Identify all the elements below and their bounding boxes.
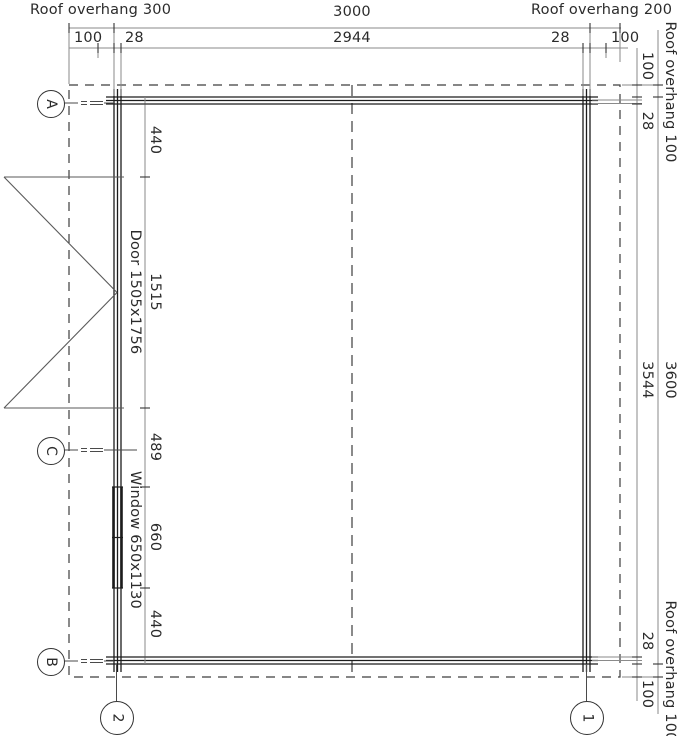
grid-bubble-2-label: 2	[109, 714, 125, 723]
grid-bubble-c: C	[37, 437, 65, 465]
dim-660-label: 660	[147, 523, 162, 551]
dim-440-top-label: 440	[147, 126, 162, 154]
grid-bubble-c-label: C	[43, 446, 59, 456]
grid-bubble-1-label: 1	[579, 714, 595, 723]
grid-bubble-2: 2	[100, 701, 134, 735]
dim-3000-label: 3000	[333, 5, 371, 20]
dim-440-bottom-label: 440	[147, 610, 162, 638]
door-swing	[4, 177, 124, 408]
grid-bubble-b-label: B	[43, 657, 59, 667]
dim-28-right-top-label: 28	[639, 112, 654, 131]
roof-overhang-top-right-label: Roof overhang 100	[662, 21, 677, 162]
grid-bubble-b: B	[37, 648, 65, 676]
dim-28-right-bottom-label: 28	[639, 632, 654, 651]
floor-plan-drawing: Roof overhang 300 3000 Roof overhang 200…	[0, 0, 680, 736]
door-annotation: Door 1505x1756	[127, 230, 142, 355]
grid-leader-c	[63, 449, 137, 452]
dim-100-top-left-label: 100	[74, 31, 102, 46]
window-annotation: Window 650x1130	[127, 471, 142, 609]
dim-28-top-right-label: 28	[551, 31, 570, 46]
dim-100-top-right-label: 100	[611, 31, 639, 46]
roof-overhang-right-label: Roof overhang 200	[531, 3, 672, 18]
dim-28-top-left-label: 28	[125, 31, 144, 46]
dim-2944-label: 2944	[333, 31, 371, 46]
roof-overhang-left-label: Roof overhang 300	[30, 3, 171, 18]
grid-bubble-1: 1	[570, 701, 604, 735]
plan-linework	[0, 0, 680, 736]
dim-100-right-bottom-label: 100	[639, 680, 654, 708]
roof-overhang-bottom-right-label: Roof overhang 100	[662, 600, 677, 736]
dim-489-label: 489	[147, 433, 162, 461]
dim-100-right-top-label: 100	[639, 52, 654, 80]
roof-overhang-outline	[69, 85, 620, 677]
dim-1515-label: 1515	[147, 273, 162, 311]
grid-bubble-a: A	[37, 90, 65, 118]
dim-3600-label: 3600	[662, 361, 677, 399]
dim-3544-label: 3544	[639, 361, 654, 399]
grid-bubble-a-label: A	[43, 99, 59, 109]
tick-marks	[69, 23, 663, 677]
